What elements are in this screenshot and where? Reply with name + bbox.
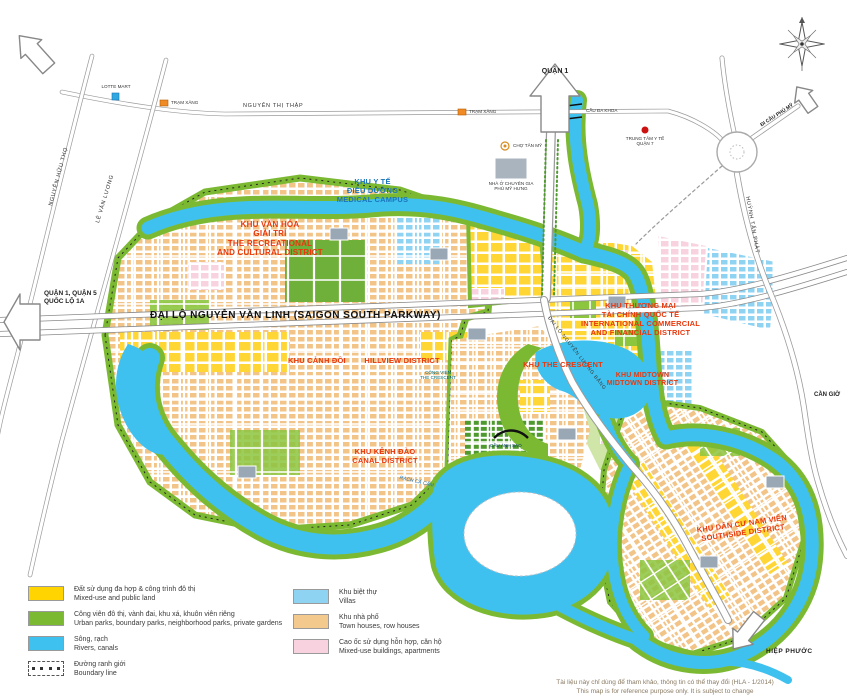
disclaimer-line2: This map is for reference purpose only. …: [490, 687, 840, 696]
district-commercial-l4: AND FINANCIAL DISTRICT: [563, 329, 718, 338]
legend-boundary-vi: Đường ranh giới: [74, 661, 126, 670]
poi-label-nha-o-chuyen-gia: NHÀ Ở CHUYÊN GIA PHÚ MỸ HƯNG: [481, 181, 541, 192]
district-recreational-l4: AND CULTURAL DISTRICT: [195, 248, 345, 257]
district-label-canal: KHU KÊNH ĐÀO CANAL DISTRICT: [340, 448, 430, 466]
legend-mixeduse-vi: Đất sử dụng đa hợp & công trình đô thị: [74, 586, 195, 595]
crescent-caption-l2: THE CRESCENT: [412, 375, 464, 380]
parkway-label: ĐẠI LỘ NGUYỄN VĂN LINH (SAIGON SOUTH PAR…: [150, 310, 441, 322]
dest-can-gio: CẦN GIỜ: [814, 392, 840, 399]
legend-rivers-en: Rivers, canals: [74, 645, 118, 654]
legend-item-boundary: Đường ranh giới Boundary line: [28, 661, 278, 679]
district-hillview-l1: KHU CẢNH ĐỒI: [288, 356, 346, 365]
legend-item-mixed-use: Đất sử dụng đa hợp & công trình đô thị M…: [28, 586, 278, 604]
gas-station-icon: [160, 100, 168, 106]
district-medical-l3: MEDICAL CAMPUS: [325, 196, 420, 205]
district-label-midtown: KHU MIDTOWN MIDTOWN DISTRICT: [595, 372, 690, 389]
bridge-label-cau-anh-sao: CẦU ÁNH SAO: [490, 443, 522, 448]
roundabout: [717, 132, 757, 172]
legend-apartments-vi: Cao ốc sử dụng hỗn hợp, căn hộ: [339, 639, 442, 648]
legend-apartments-en: Mixed-use buildings, apartments: [339, 648, 442, 657]
legend-boundary-en: Boundary line: [74, 670, 126, 679]
legend-item-parks: Công viên đô thị, vành đai, khu xá, khuô…: [28, 611, 288, 629]
legend-swatch-green: [28, 611, 64, 626]
district-label-crescent: KHU THE CRESCENT: [498, 361, 628, 370]
district-label-hillview: KHU CẢNH ĐỒI HILLVIEW DISTRICT: [288, 357, 440, 366]
poi-label-lotte: LOTTE MART: [92, 84, 140, 89]
dest-hiep-phuoc: HIỆP PHƯỚC: [766, 648, 813, 656]
legend-swatch-tan: [293, 614, 329, 629]
district-recreational-l3: THE RECREATIONAL: [195, 239, 345, 248]
gas-station-icon: [458, 109, 466, 115]
district-crescent-l1: KHU THE CRESCENT: [498, 361, 628, 370]
legend-swatch-yellow: [28, 586, 64, 601]
dest-quan1-quan5-line1: QUẬN 1, QUẬN 5: [44, 290, 97, 298]
legend-villas-vi: Khu biệt thự: [339, 589, 377, 598]
district-recreational-l1: KHU VĂN HÓA: [195, 220, 345, 229]
poi-ttyt-l2: QUẬN 7: [620, 141, 670, 146]
crescent-lake-caption: CÔNG VIÊN THE CRESCENT: [412, 370, 464, 381]
bridge-label-cau-da-khoa: CẦU ĐA KHOA: [586, 108, 617, 113]
district-label-recreational: KHU VĂN HÓA GIẢI TRÍ THE RECREATIONAL AN…: [195, 220, 345, 258]
legend-mixeduse-en: Mixed-use and public land: [74, 595, 195, 604]
disclaimer-line1: Tài liệu này chỉ dùng để tham khảo, thôn…: [490, 678, 840, 687]
legend-townhouses-vi: Khu nhà phố: [339, 614, 420, 623]
compass-icon: [779, 17, 825, 71]
masterplan-map: ĐẠI LỘ NGUYỄN VĂN LINH (SAIGON SOUTH PAR…: [0, 0, 847, 696]
legend-swatch-blue: [28, 636, 64, 651]
poi-label-tramxang1: TRẠM XĂNG: [171, 100, 198, 105]
district-label-medical: KHU Y TẾ ĐIỀU DƯỠNG MEDICAL CAMPUS: [325, 178, 420, 205]
legend-parks-en: Urban parks, boundary parks, neighborhoo…: [74, 620, 282, 629]
legend-item-apartments: Cao ốc sử dụng hỗn hợp, căn hộ Mixed-use…: [293, 639, 523, 657]
legend-swatch-boundary: [28, 661, 64, 676]
poi-label-chotanmy: CHỢ TÂN MỸ: [513, 143, 542, 148]
arrow-topleft: [9, 26, 59, 77]
legend-parks-vi: Công viên đô thị, vành đai, khu xá, khuô…: [74, 611, 282, 620]
legend-rivers-vi: Sông, rạch: [74, 636, 118, 645]
district-label-commercial: KHU THƯƠNG MẠI TÀI CHÍNH QUỐC TẾ INTERNA…: [563, 302, 718, 337]
legend-item-rivers: Sông, rạch Rivers, canals: [28, 636, 278, 654]
disclaimer: Tài liệu này chỉ dùng để tham khảo, thôn…: [490, 678, 840, 696]
poi-label-tramxang2: TRẠM XĂNG: [469, 109, 496, 114]
medical-center-icon: [642, 127, 649, 134]
poi-nhao-l2: PHÚ MỸ HƯNG: [481, 186, 541, 191]
legend-item-villas: Khu biệt thự Villas: [293, 589, 513, 607]
district-midtown-l2: MIDTOWN DISTRICT: [595, 380, 690, 388]
lottemart-icon: [112, 93, 119, 100]
legend-swatch-villa-blue: [293, 589, 329, 604]
district-canal-l2: CANAL DISTRICT: [340, 457, 430, 466]
legend-swatch-pink: [293, 639, 329, 654]
district-recreational-l2: GIẢI TRÍ: [195, 229, 345, 238]
district-hillview-l2: HILLVIEW DISTRICT: [364, 356, 439, 365]
dest-quan1-quan5: QUẬN 1, QUẬN 5 QUỐC LỘ 1A: [44, 290, 97, 305]
dest-quoc-lo-1a: QUỐC LỘ 1A: [44, 298, 97, 306]
legend-item-townhouses: Khu nhà phố Town houses, row houses: [293, 614, 513, 632]
legend-villas-en: Villas: [339, 598, 377, 607]
legend-townhouses-en: Town houses, row houses: [339, 623, 420, 632]
dest-quan1: QUẬN 1: [535, 68, 575, 76]
poi-label-ttyt-q7: TRUNG TÂM Y TẾ QUẬN 7: [620, 136, 670, 147]
road-label-nguyen-thi-thap: NGUYỄN THỊ THẬP: [243, 103, 303, 109]
district-midtown-l1: KHU MIDTOWN: [595, 372, 690, 380]
